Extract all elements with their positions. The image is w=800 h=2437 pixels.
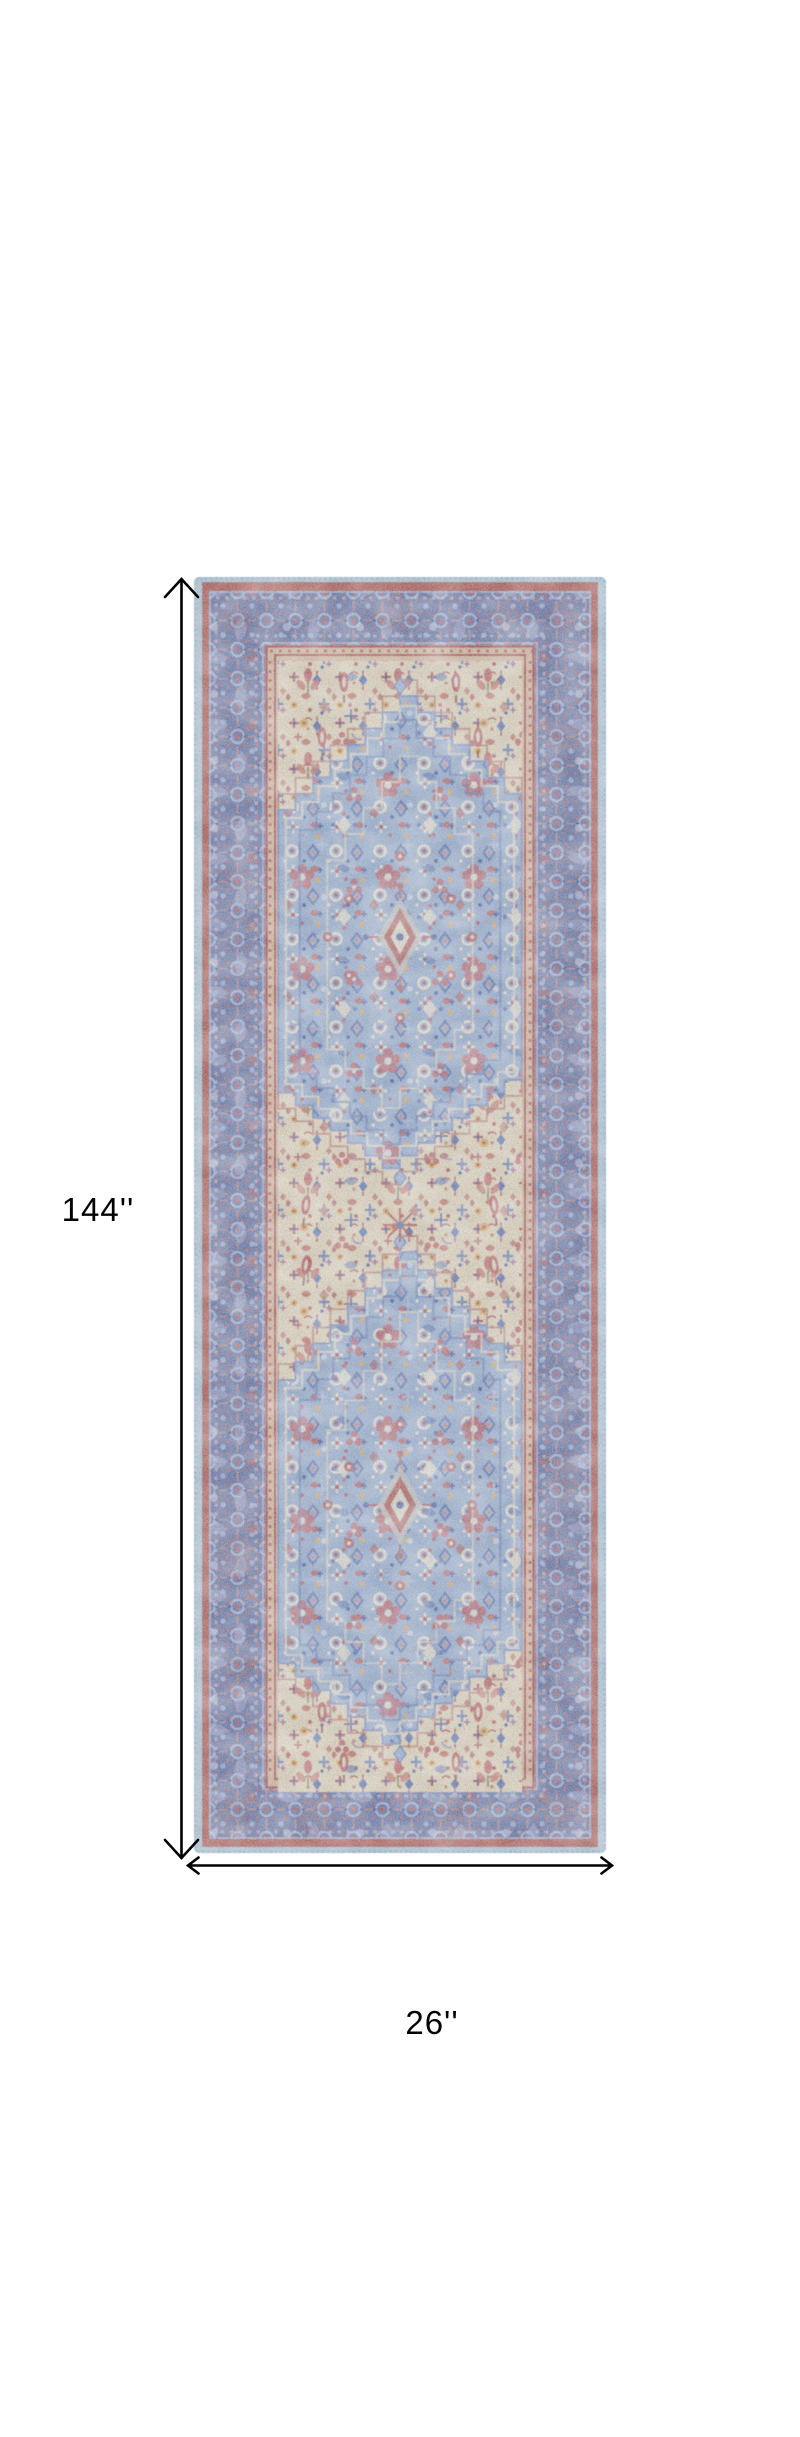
svg-text:144'': 144'' [62, 1191, 135, 1228]
svg-text:26'': 26'' [405, 2004, 458, 2041]
